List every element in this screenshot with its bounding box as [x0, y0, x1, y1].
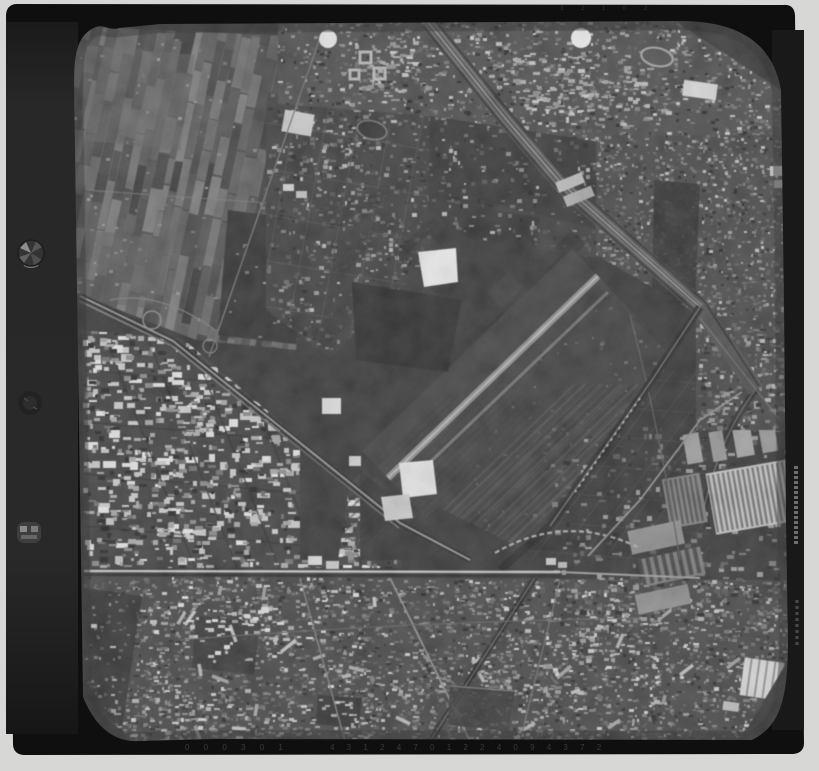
svg-text:0 0 0 3 0 1: 0 0 0 3 0 1 — [185, 743, 289, 752]
svg-text:4 3 1 2 4 7 0 1 2 2 4 0 9 4 3: 4 3 1 2 4 7 0 1 2 2 4 0 9 4 3 7 2 — [330, 743, 606, 752]
svg-text:3 2 1 0 2: 3 2 1 0 2 — [560, 6, 655, 12]
